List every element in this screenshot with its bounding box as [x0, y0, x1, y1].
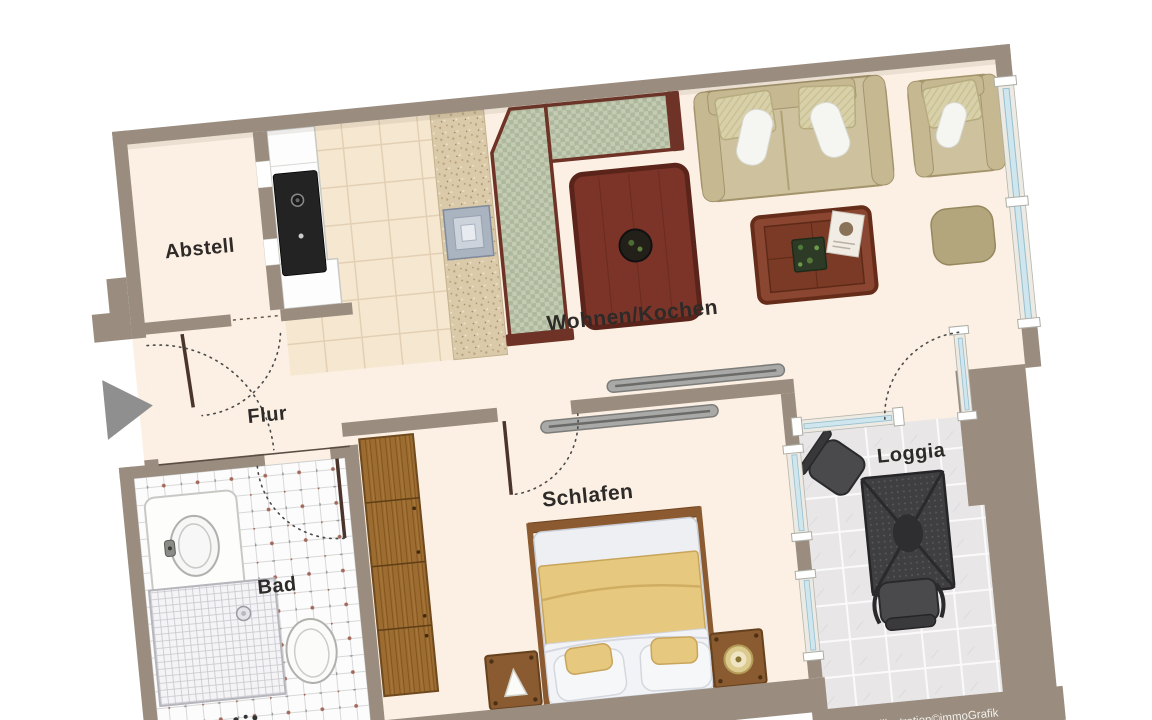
granite-sink-inner [461, 224, 476, 241]
floorplan: Abstell Wohnen/Kochen Flur Bad Schlafen … [74, 44, 1079, 720]
floorplan-canvas: Abstell Wohnen/Kochen Flur Bad Schlafen … [0, 0, 1152, 720]
pouf [930, 205, 997, 267]
nightstand-right [710, 629, 767, 688]
armchair [907, 73, 1006, 177]
wall-step-outer-b [92, 311, 133, 343]
plant-box-icon [792, 237, 827, 272]
bed-cushion-right [651, 637, 698, 665]
kitchen-stove-block [273, 170, 327, 276]
wall-niche-lower [263, 238, 279, 265]
label-bad: Bad [256, 573, 297, 599]
wall-niche-upper [256, 161, 272, 188]
coffee-table [751, 206, 877, 303]
label-flur: Flur [247, 402, 289, 428]
nightstand-left [485, 651, 542, 710]
sofa-group [693, 74, 895, 202]
